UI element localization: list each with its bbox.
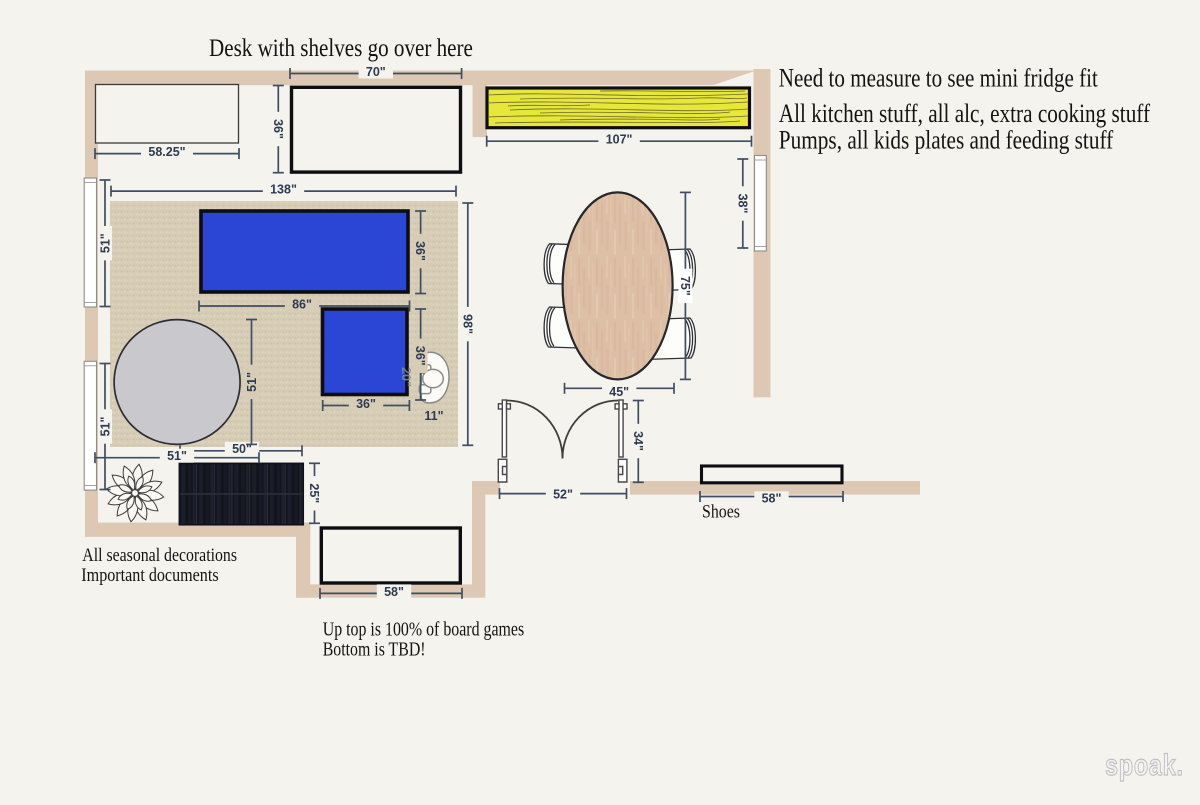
svg-text:Bottom is TBD!: Bottom is TBD! bbox=[323, 638, 426, 660]
svg-text:58.25": 58.25" bbox=[148, 145, 185, 159]
svg-text:138": 138" bbox=[270, 183, 297, 197]
svg-text:Need to measure to see mini fr: Need to measure to see mini fridge fit bbox=[779, 64, 1098, 93]
svg-text:36": 36" bbox=[413, 241, 427, 261]
svg-text:36": 36" bbox=[271, 119, 285, 139]
svg-text:Important documents: Important documents bbox=[81, 564, 218, 586]
svg-text:51": 51" bbox=[245, 372, 259, 392]
svg-text:70": 70" bbox=[366, 65, 386, 79]
svg-text:86": 86" bbox=[292, 297, 312, 311]
svg-text:51": 51" bbox=[98, 233, 112, 253]
svg-text:51": 51" bbox=[98, 417, 112, 437]
svg-text:Pumps, all kids plates and fee: Pumps, all kids plates and feeding stuff bbox=[779, 127, 1113, 156]
svg-text:107": 107" bbox=[606, 133, 633, 147]
svg-text:All seasonal decorations: All seasonal decorations bbox=[82, 543, 237, 565]
svg-text:Desk with shelves go over here: Desk with shelves go over here bbox=[209, 34, 473, 62]
svg-text:36": 36" bbox=[356, 397, 376, 411]
svg-text:34": 34" bbox=[631, 431, 645, 451]
svg-text:45": 45" bbox=[609, 385, 629, 399]
svg-text:Shoes: Shoes bbox=[702, 500, 740, 522]
svg-text:75": 75" bbox=[678, 276, 692, 296]
svg-text:20": 20" bbox=[399, 367, 413, 387]
svg-text:spoak.: spoak. bbox=[1105, 748, 1184, 781]
svg-text:36": 36" bbox=[413, 346, 427, 366]
svg-text:11": 11" bbox=[424, 409, 443, 423]
svg-text:98": 98" bbox=[460, 314, 474, 334]
svg-text:58": 58" bbox=[762, 492, 782, 506]
svg-text:58": 58" bbox=[384, 585, 404, 599]
svg-text:51": 51" bbox=[167, 449, 187, 463]
svg-text:38": 38" bbox=[735, 194, 749, 214]
svg-text:All kitchen stuff, all alc, ex: All kitchen stuff, all alc, extra cookin… bbox=[779, 100, 1150, 129]
svg-text:52": 52" bbox=[553, 488, 573, 502]
svg-text:25": 25" bbox=[307, 483, 321, 503]
